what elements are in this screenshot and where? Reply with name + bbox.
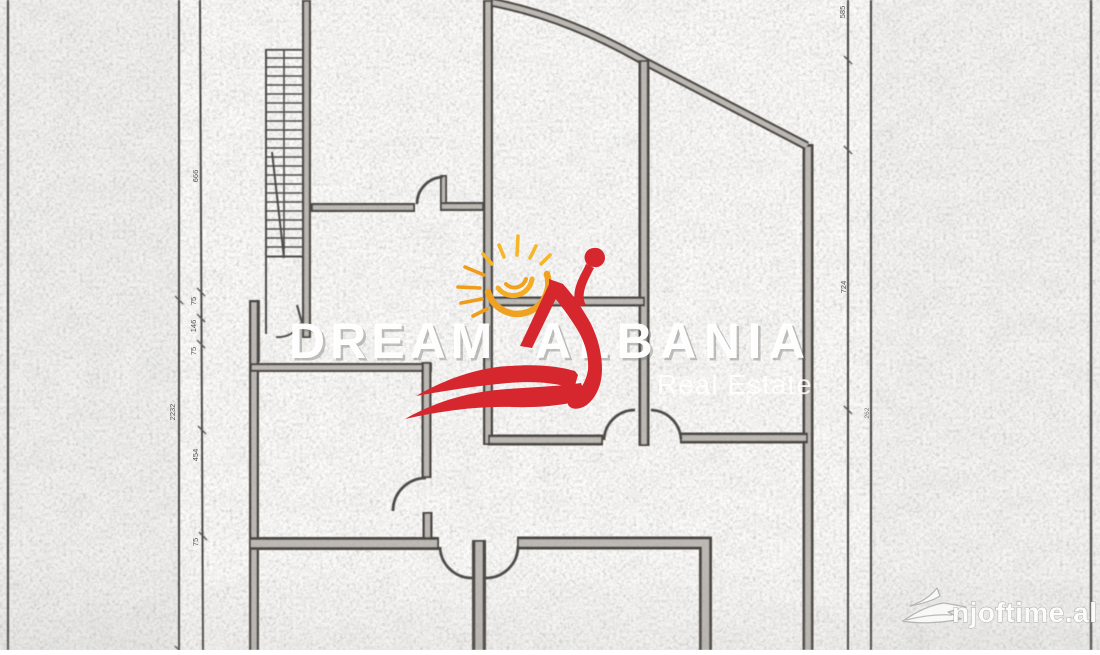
svg-text:DREAM: DREAM <box>289 313 497 369</box>
svg-text:Real Estate: Real Estate <box>657 369 813 400</box>
svg-text:njoftime.al: njoftime.al <box>952 597 1098 628</box>
